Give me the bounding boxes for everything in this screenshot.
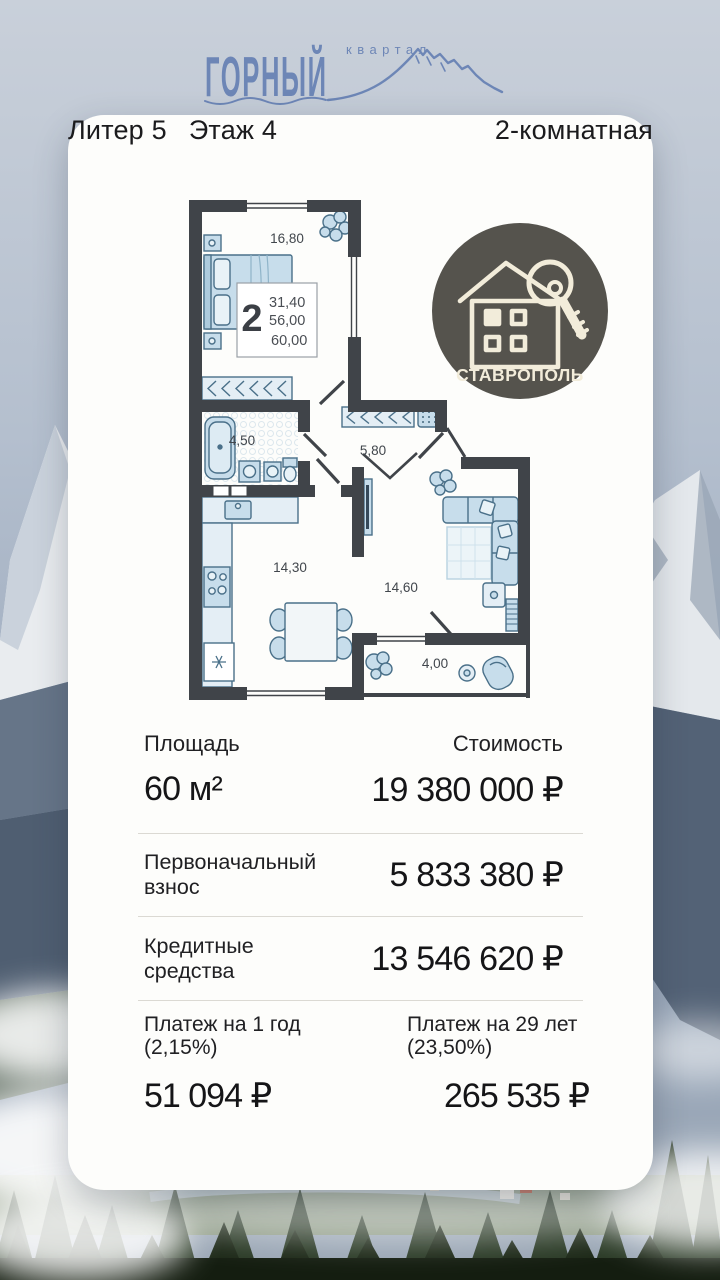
area-wo-balcony-value: 56,00 <box>269 313 305 329</box>
balcony-table <box>459 665 475 681</box>
rug <box>447 527 491 579</box>
nightstand <box>204 333 221 349</box>
fridge <box>204 643 234 681</box>
credit-label: Кредитные средства <box>144 934 314 984</box>
living-area-value: 31,40 <box>269 295 305 311</box>
gorny-kvartal-logo: ГОРНЫЙ квартал <box>150 8 570 112</box>
city-badge: СТАВРОПОЛЬ <box>430 221 610 401</box>
payment-year1-value: 51 094 ₽ <box>144 1076 301 1116</box>
payment-rest-label: Платеж на 29 лет <box>407 1013 607 1036</box>
payment-year1-label: Платеж на 1 год <box>144 1013 301 1036</box>
payments-row: Платеж на 1 год (2,15%) 51 094 ₽ Платеж … <box>144 1013 563 1133</box>
balcony-chair <box>479 653 517 693</box>
header-left: Литер 5 Этаж 4 <box>68 115 277 146</box>
toilet <box>283 458 297 482</box>
payment-rest-value: 265 535 ₽ <box>407 1076 589 1116</box>
offer-card: Литер 5 Этаж 4 2-комнатная <box>68 115 653 1190</box>
card-header: Литер 5 Этаж 4 2-комнатная <box>68 115 653 146</box>
price-value: 19 380 000 ₽ <box>371 770 563 810</box>
living-area-label: 14,60 <box>384 580 418 595</box>
bedroom-area-label: 16,80 <box>270 231 304 246</box>
tv-unit <box>364 479 372 535</box>
credit-value: 13 546 620 ₽ <box>371 939 563 979</box>
bedroom-wardrobe <box>202 377 292 400</box>
divider <box>138 916 583 917</box>
washing-machine <box>239 461 260 482</box>
divider <box>138 1000 583 1001</box>
plant <box>320 211 351 241</box>
logo-brand-text: ГОРНЫЙ <box>205 43 328 109</box>
apartment-info-box: 2 31,40 56,00 60,00 <box>237 283 317 357</box>
down-payment-value: 5 833 380 ₽ <box>389 855 563 895</box>
nightstand <box>204 235 221 251</box>
building-label: Литер 5 <box>68 115 167 146</box>
side-table <box>483 583 505 607</box>
balcony-area-label: 4,00 <box>422 656 448 671</box>
hallway-area-label: 5,80 <box>360 443 386 458</box>
payment-rest-rate: (23,50%) <box>407 1036 607 1059</box>
balcony-plant <box>366 652 392 679</box>
total-area-value: 60,00 <box>271 333 307 349</box>
rooms-count: 2 <box>241 298 262 340</box>
dining-table <box>270 603 352 661</box>
price-label: Стоимость <box>371 731 563 757</box>
payment-year1-rate: (2,15%) <box>144 1036 301 1059</box>
payment-rest-block: Платеж на 29 лет (23,50%) 265 535 ₽ <box>407 1013 607 1116</box>
sink <box>264 462 281 481</box>
price-block: Стоимость 19 380 000 ₽ <box>371 731 563 810</box>
payment-year1-block: Платеж на 1 год (2,15%) 51 094 ₽ <box>144 1013 301 1116</box>
floor-label: Этаж 4 <box>189 115 277 146</box>
area-value: 60 м² <box>144 770 240 809</box>
mountain-snow-marks <box>416 56 445 71</box>
divider <box>138 833 583 834</box>
real-estate-flyer: { "logo": { "brand": "ГОРНЫЙ", "sub": "к… <box>0 0 720 1280</box>
area-price-row: Площадь 60 м² Стоимость 19 380 000 ₽ <box>144 731 563 810</box>
rooms-type-label: 2-комнатная <box>495 115 653 146</box>
stove <box>204 567 230 607</box>
area-block: Площадь 60 м² <box>144 731 240 810</box>
area-label: Площадь <box>144 731 240 757</box>
bathroom-area-label: 4,50 <box>229 433 255 448</box>
radiator <box>506 599 518 631</box>
kitchen-area-label: 14,30 <box>273 560 307 575</box>
plant <box>430 470 456 495</box>
down-payment-label: Первоначальный взнос <box>144 850 374 900</box>
bathtub <box>205 417 235 479</box>
down-payment-row: Первоначальный взнос 5 833 380 ₽ <box>144 843 563 907</box>
fog-cloud <box>150 1185 650 1240</box>
badge-city-label: СТАВРОПОЛЬ <box>456 365 584 385</box>
credit-row: Кредитные средства 13 546 620 ₽ <box>144 927 563 991</box>
